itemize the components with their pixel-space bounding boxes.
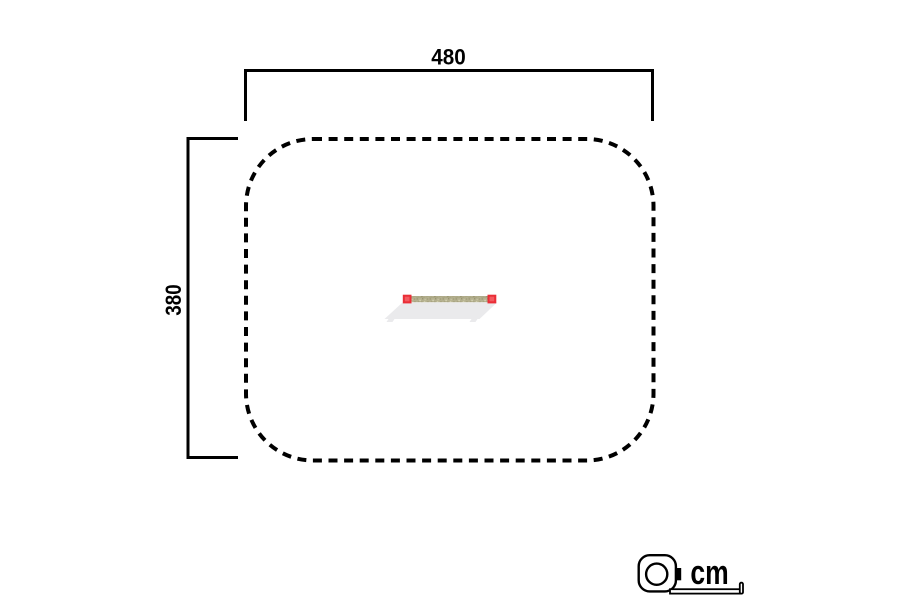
svg-text:380: 380 [163, 284, 187, 315]
svg-text:cm: cm [690, 554, 728, 592]
svg-text:480: 480 [431, 45, 466, 70]
